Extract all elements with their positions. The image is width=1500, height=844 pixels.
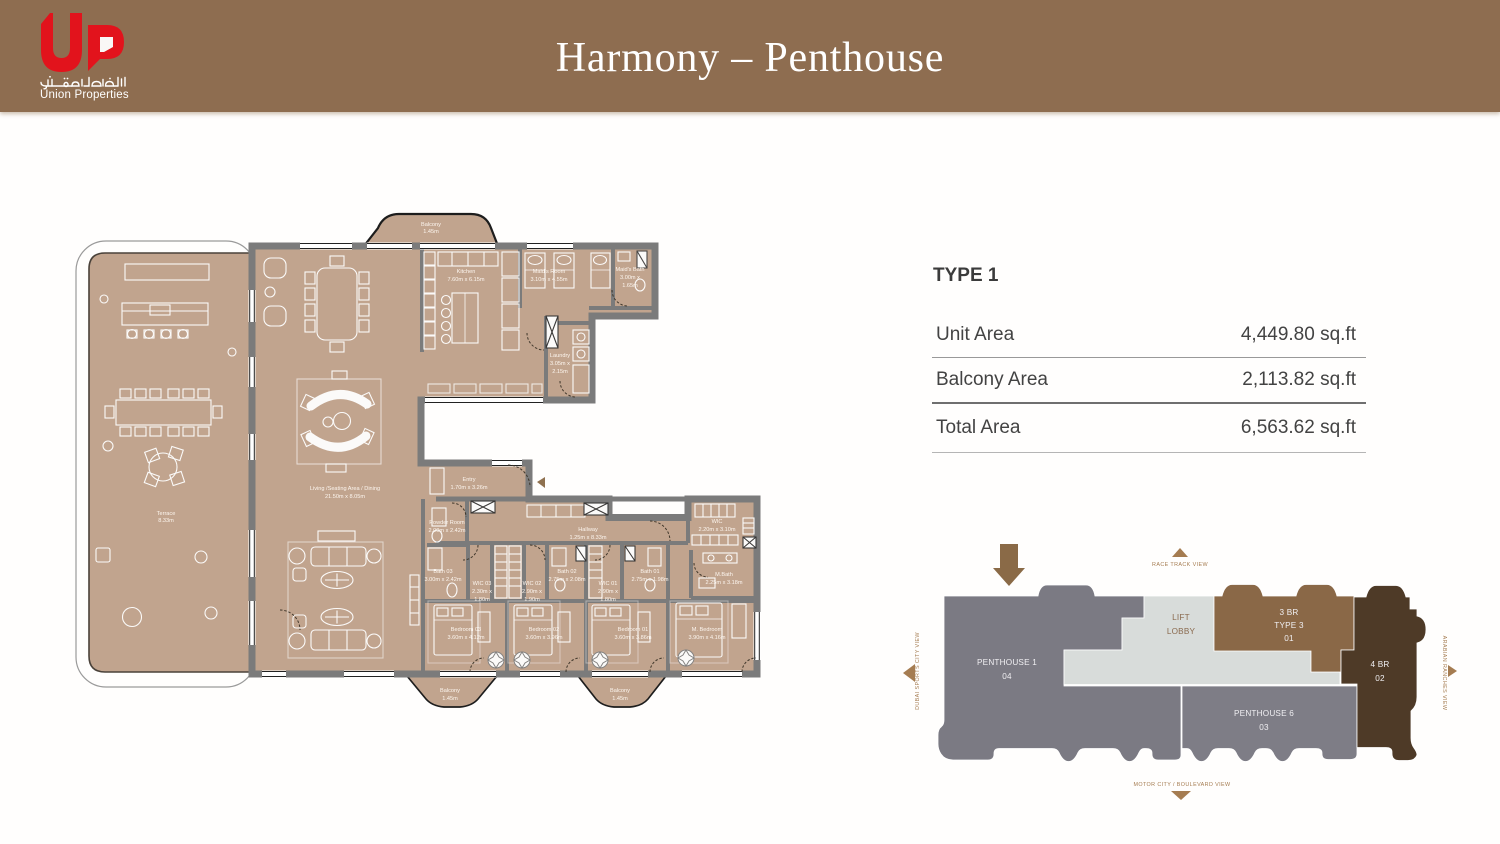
svg-text:3.60m x 3.86m: 3.60m x 3.86m — [615, 635, 652, 641]
svg-text:Balcony: Balcony — [610, 688, 630, 694]
svg-text:Powder Room: Powder Room — [429, 520, 465, 526]
svg-text:1.45m: 1.45m — [423, 229, 439, 235]
svg-text:1.45m: 1.45m — [442, 696, 458, 702]
svg-text:7.60m x 6.15m: 7.60m x 6.15m — [448, 277, 485, 283]
svg-text:3.90m x 4.16m: 3.90m x 4.16m — [689, 635, 726, 641]
svg-text:Bath 02: Bath 02 — [557, 569, 576, 575]
svg-text:Hallway: Hallway — [578, 527, 598, 533]
svg-text:2.20m x 3.10m: 2.20m x 3.10m — [699, 527, 736, 533]
svg-text:WIC 01: WIC 01 — [599, 581, 618, 587]
svg-text:Terrace: Terrace — [157, 511, 176, 517]
svg-text:01: 01 — [1284, 634, 1294, 643]
svg-text:TYPE 3: TYPE 3 — [1274, 621, 1304, 630]
svg-text:Maid's Room: Maid's Room — [533, 269, 566, 275]
svg-text:PENTHOUSE 6: PENTHOUSE 6 — [1234, 709, 1294, 718]
svg-text:1.90m: 1.90m — [524, 597, 540, 603]
svg-text:LOBBY: LOBBY — [1167, 627, 1196, 636]
svg-text:3 BR: 3 BR — [1279, 608, 1298, 617]
svg-text:Balcony: Balcony — [421, 222, 441, 228]
svg-text:Balcony: Balcony — [440, 688, 460, 694]
svg-text:1.80m: 1.80m — [474, 597, 490, 603]
svg-text:Maid's Bath: Maid's Bath — [615, 267, 644, 273]
svg-text:8.33m: 8.33m — [158, 518, 174, 524]
svg-text:M. Bedroom: M. Bedroom — [692, 627, 723, 633]
svg-text:3.00m x 2.42m: 3.00m x 2.42m — [425, 577, 462, 583]
svg-text:Bath 01: Bath 01 — [640, 569, 659, 575]
svg-text:1.45m: 1.45m — [612, 696, 628, 702]
svg-text:DUBAI SPORTS CITY VIEW: DUBAI SPORTS CITY VIEW — [915, 632, 921, 710]
svg-text:2.75m x 2.08m: 2.75m x 2.08m — [549, 577, 586, 583]
svg-text:PENTHOUSE 1: PENTHOUSE 1 — [977, 658, 1037, 667]
svg-text:04: 04 — [1002, 672, 1012, 681]
svg-text:2.25m x 3.18m: 2.25m x 3.18m — [706, 580, 743, 586]
svg-text:1.25m x 8.33m: 1.25m x 8.33m — [570, 535, 607, 541]
svg-text:3.10m x 4.55m: 3.10m x 4.55m — [531, 277, 568, 283]
svg-text:WIC 02: WIC 02 — [523, 581, 542, 587]
svg-text:4 BR: 4 BR — [1370, 660, 1389, 669]
svg-text:3.00m x: 3.00m x — [620, 275, 640, 281]
svg-text:1.65m: 1.65m — [622, 283, 638, 289]
svg-text:Living /Seating Area / Dining: Living /Seating Area / Dining — [310, 486, 380, 492]
svg-text:MOTOR CITY / BOULEVARD VIEW: MOTOR CITY / BOULEVARD VIEW — [1133, 782, 1231, 788]
svg-text:2.75m x 1.98m: 2.75m x 1.98m — [632, 577, 669, 583]
svg-text:1.70m x 3.26m: 1.70m x 3.26m — [451, 485, 488, 491]
svg-text:3.60m x 4.12m: 3.60m x 4.12m — [448, 635, 485, 641]
svg-text:Bedroom 03: Bedroom 03 — [451, 627, 481, 633]
svg-text:2.30m x: 2.30m x — [472, 589, 492, 595]
svg-text:2.00m x 2.42m: 2.00m x 2.42m — [429, 528, 466, 534]
svg-text:03: 03 — [1259, 723, 1269, 732]
svg-text:ARABIAN RANCHES VIEW: ARABIAN RANCHES VIEW — [1441, 636, 1447, 711]
svg-text:Entry: Entry — [462, 477, 475, 483]
svg-text:02: 02 — [1375, 674, 1385, 683]
svg-text:RACE TRACK VIEW: RACE TRACK VIEW — [1152, 562, 1208, 568]
svg-text:WIC: WIC — [712, 519, 723, 525]
svg-text:Kitchen: Kitchen — [457, 269, 476, 275]
svg-text:21.50m x 8.05m: 21.50m x 8.05m — [325, 494, 365, 500]
svg-text:1.80m: 1.80m — [600, 597, 616, 603]
svg-text:Bath 03: Bath 03 — [433, 569, 452, 575]
svg-text:2.90m x: 2.90m x — [598, 589, 618, 595]
svg-text:2.90m x: 2.90m x — [522, 589, 542, 595]
svg-text:3.05m x: 3.05m x — [550, 361, 570, 367]
svg-text:Bedroom 02: Bedroom 02 — [529, 627, 559, 633]
svg-text:WIC 03: WIC 03 — [473, 581, 492, 587]
svg-text:3.60m x 3.96m: 3.60m x 3.96m — [526, 635, 563, 641]
svg-text:LIFT: LIFT — [1172, 613, 1190, 622]
svg-text:2.15m: 2.15m — [552, 369, 568, 375]
svg-text:M.Bath: M.Bath — [715, 572, 733, 578]
svg-text:Laundry: Laundry — [550, 353, 570, 359]
svg-text:Bedroom 01: Bedroom 01 — [618, 627, 648, 633]
